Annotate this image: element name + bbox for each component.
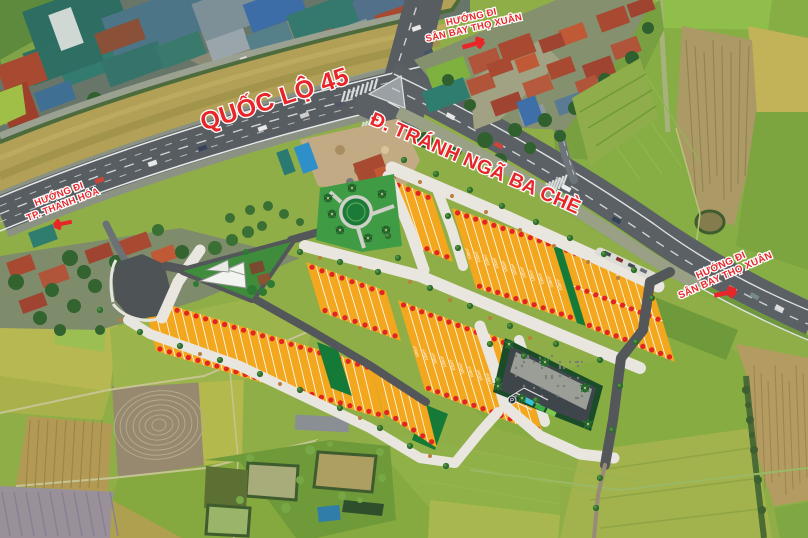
svg-text:P: P [510, 399, 514, 405]
